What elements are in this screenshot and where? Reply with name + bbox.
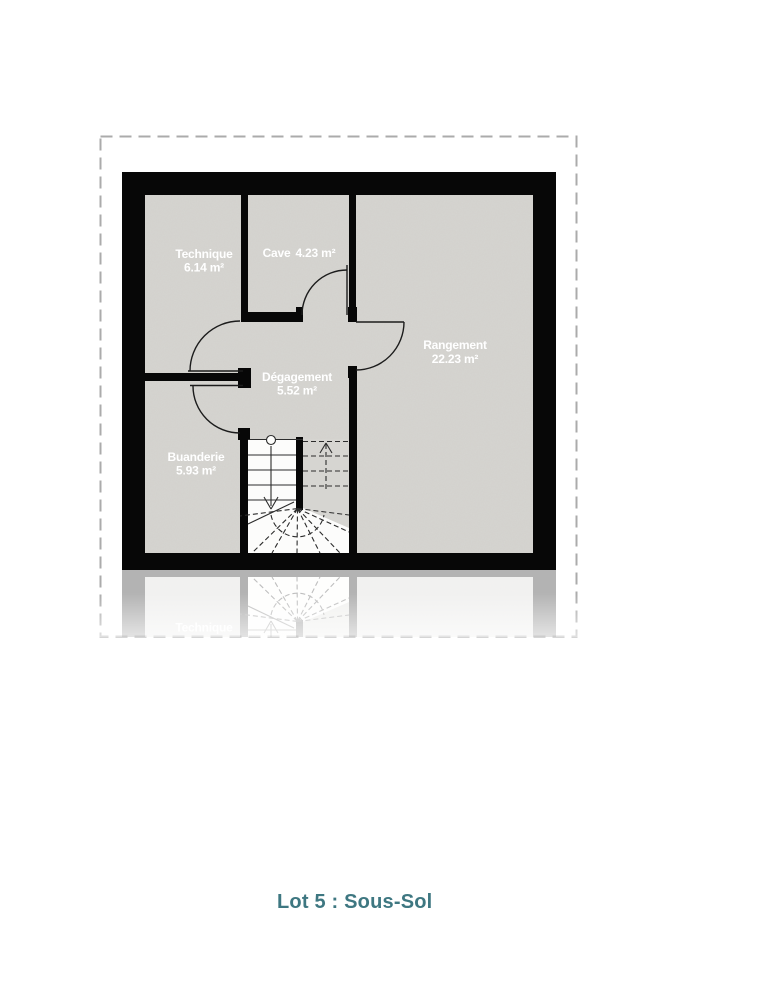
wall-stair-left (240, 440, 248, 553)
wall-degagement-rangement (349, 378, 357, 553)
plan-reflection: Technique (98, 560, 580, 700)
wall-right (533, 172, 556, 570)
reflection-fade (98, 570, 580, 638)
room-area-degagement: 5.52 m² (277, 384, 317, 398)
wall-stair-stringer (296, 437, 303, 510)
room-label-rangement: Rangement (423, 338, 487, 352)
door-post-rangement (348, 366, 357, 378)
room-label-cave: Cave4.23 m² (263, 246, 336, 260)
wall-left (122, 172, 145, 570)
door-post-cave-right (348, 307, 357, 322)
floor-plan-page: Technique 6.14 m² Cave4.23 m² Dégagement… (0, 0, 773, 981)
room-area-rangement: 22.23 m² (432, 352, 479, 366)
wall-bottom (122, 553, 556, 570)
wall-cave-rangement (349, 195, 356, 322)
door-post-buanderie (238, 428, 250, 440)
stair-newel-icon (267, 436, 276, 445)
wall-cave-bottom (241, 312, 303, 322)
room-label-degagement: Dégagement (262, 370, 332, 384)
room-area-technique: 6.14 m² (184, 261, 224, 275)
room-label-technique: Technique (175, 247, 233, 261)
room-area-buanderie: 5.93 m² (176, 464, 216, 478)
room-label-buanderie: Buanderie (168, 450, 225, 464)
wall-top (122, 172, 556, 195)
wall-technique-buanderie (145, 373, 248, 381)
plan-title: Lot 5 : Sous-Sol (277, 891, 432, 914)
wall-technique-cave (241, 195, 248, 312)
floor-plan-image[interactable]: Technique 6.14 m² Cave4.23 m² Dégagement… (0, 0, 773, 700)
basement-plan: Technique 6.14 m² Cave4.23 m² Dégagement… (122, 172, 556, 570)
